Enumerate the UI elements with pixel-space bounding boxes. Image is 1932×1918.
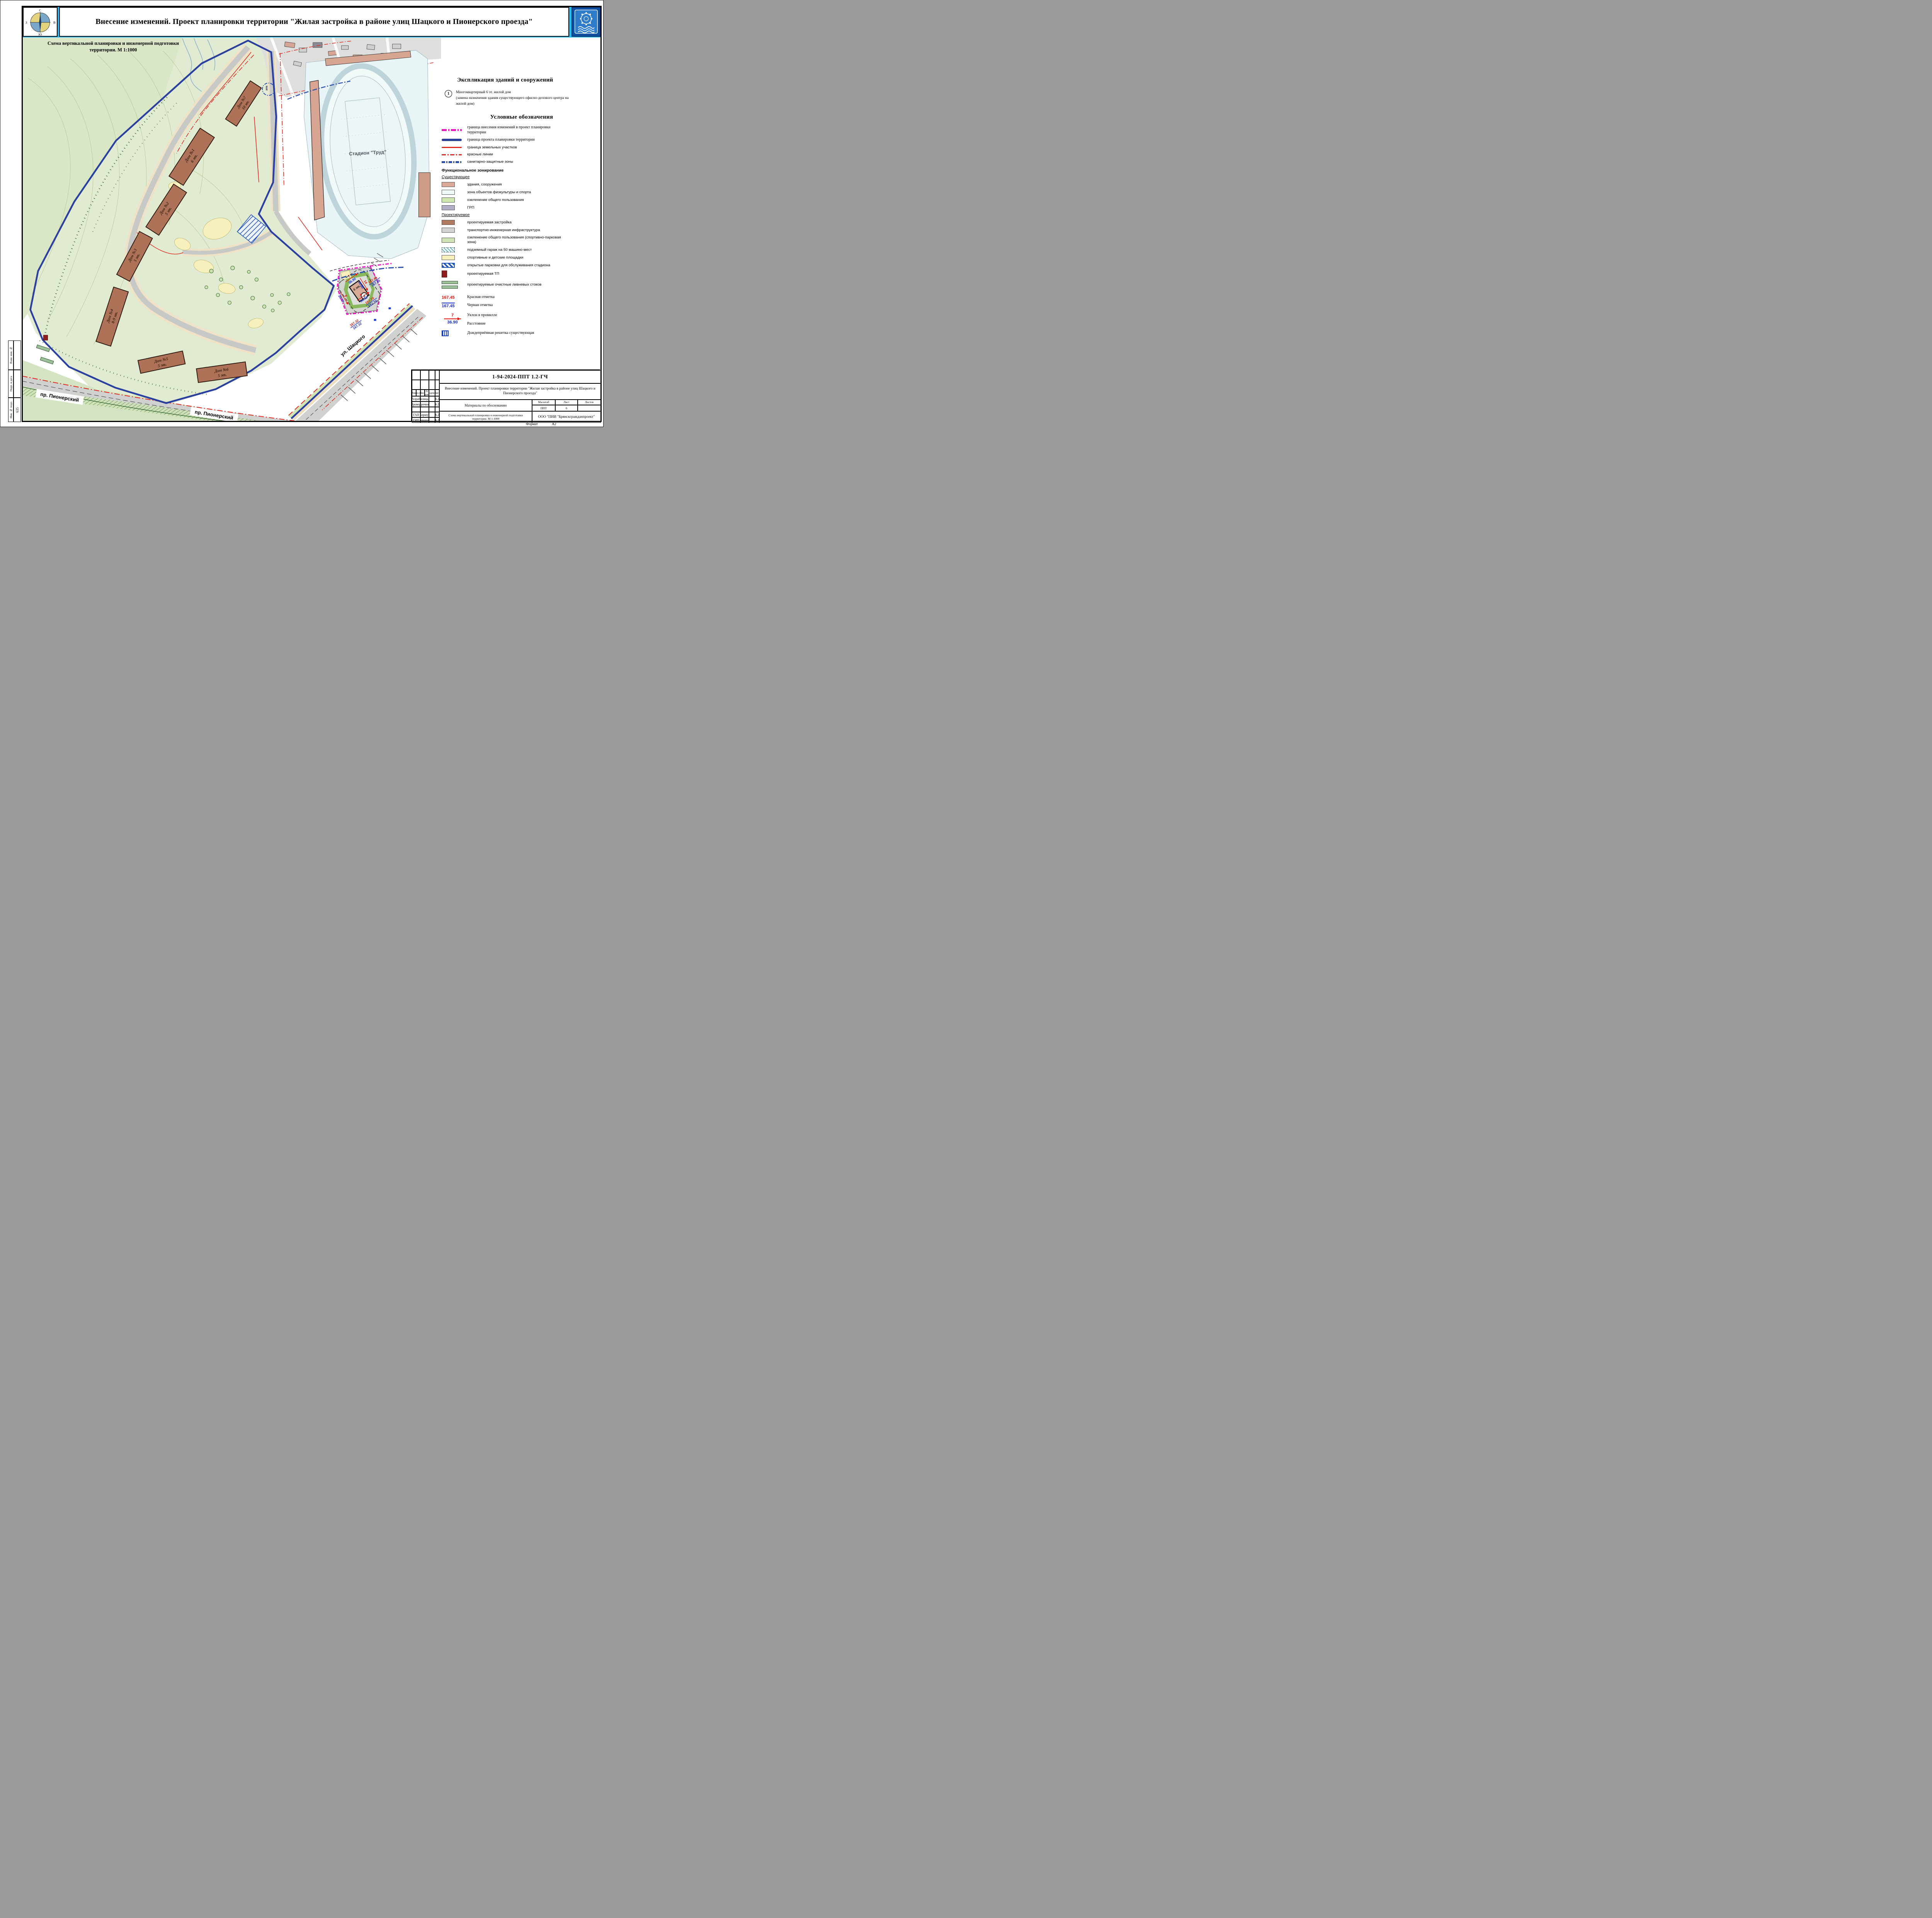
legend-label: Черная отметка — [467, 303, 493, 308]
title-bar: Внесение изменений. Проект планировки те… — [59, 7, 569, 37]
format-footer: Формат А2 — [526, 422, 603, 426]
proposed-tp — [43, 335, 48, 340]
legend-item: озеленение общего пользования (спортивно… — [442, 235, 602, 245]
legend-label: подземный гараж на 50 машино-мест — [467, 248, 532, 252]
change-boundary-symbol — [442, 129, 462, 131]
format-value: А2 — [552, 422, 556, 426]
explication-line: (замена назначения здания существующего … — [456, 95, 569, 101]
tb-sh-value: 6 — [555, 405, 578, 411]
tb-role: Разраб. — [412, 396, 420, 402]
legend-label: проектируемая ТП — [467, 272, 499, 276]
tb-col-ndok: N док. — [425, 390, 429, 396]
garage-swatch — [442, 247, 455, 252]
side-label: Взам. инв. № — [9, 347, 13, 364]
inventory-number: 635 — [15, 407, 19, 413]
tb-col-koluch: Кол.уч. — [416, 390, 420, 396]
legend-heading: Условные обозначения — [442, 114, 602, 121]
legend-label: Дождеприёмная решетка существующая — [467, 331, 534, 336]
tb-sh-label: Лист — [555, 400, 578, 405]
open-parking-swatch — [442, 263, 455, 268]
map-subtitle: Схема вертикальной планировки и инженерн… — [46, 40, 181, 53]
legend-label: ГРП — [467, 206, 474, 210]
tb-name: Коршук — [420, 412, 429, 417]
tb-sc-label: Масштаб — [532, 400, 555, 405]
greenery-swatch — [442, 197, 455, 203]
tb-name: Дорощин — [420, 417, 429, 423]
explication-panel: Экспликация зданий и сооружений 1 Многок… — [445, 77, 599, 107]
legend-item: проектируемая застройка — [442, 220, 602, 225]
explication-item-number: 1 — [445, 90, 452, 97]
legend-item: санитарно-защитные зоны — [442, 160, 602, 164]
tb-role: Провер. — [412, 402, 420, 407]
explication-item-text: Многоквартирный 6 эт. жилой дом (замена … — [456, 90, 569, 107]
legend-item: граница внесения изменений в проект план… — [442, 125, 602, 135]
legend-label: Красная отметка — [467, 295, 495, 300]
stadium-building-east — [419, 173, 430, 217]
tb-date: 06.24 — [435, 412, 439, 417]
explication-line: Многоквартирный 6 эт. жилой дом — [456, 90, 569, 95]
tb-company: ООО "ПИИ "Брянскгражданпроект" — [532, 411, 601, 423]
sport-zone-swatch — [442, 190, 455, 195]
legend-item: открытые парковки для обслуживания стади… — [442, 263, 602, 268]
compass-s: Ю — [39, 32, 42, 36]
side-label: Инв. № подл. — [9, 401, 13, 419]
side-stamp-vzam-value — [14, 340, 21, 370]
red-lines-symbol — [442, 154, 462, 155]
side-stamp-podp: Подп. и дата — [8, 370, 14, 398]
legend-label: граница земельных участков — [467, 145, 517, 150]
project-boundary-symbol — [442, 139, 462, 141]
explication-line: жилой дом) — [456, 101, 569, 107]
page-title: Внесение изменений. Проект планировки те… — [95, 17, 533, 26]
logo-icon — [572, 8, 600, 36]
legend-item: 167.45 Черная отметка — [442, 303, 602, 308]
compass-n: С — [39, 8, 41, 12]
legend-item: красные линии — [442, 152, 602, 157]
tb-col-data: Дата — [435, 390, 439, 396]
legend-label: спортивные и детские площадки — [467, 255, 523, 260]
side-label: Подп. и дата — [9, 376, 13, 391]
legend-item: здания, сооружения — [442, 182, 602, 187]
legend-item: граница проекта планировки территории — [442, 138, 602, 143]
grp-swatch — [442, 205, 455, 210]
red-mark-symbol: 167.45 — [442, 295, 455, 300]
park-greenery-swatch — [442, 238, 455, 243]
tb-scheme-name: Схема вертикальной планировки и инженерн… — [439, 411, 532, 423]
legend-item: спортивные и детские площадки — [442, 255, 602, 260]
compass-e: В — [53, 20, 56, 24]
zoning-heading: Функциональное зонирование — [442, 168, 602, 173]
legend-label: санитарно-защитные зоны — [467, 160, 513, 164]
proposed-heading: Проектируемое — [442, 213, 602, 217]
legend-item: 7 36.90 Уклон в промилле Расстояние — [442, 313, 602, 327]
parcel-boundary-symbol — [442, 147, 462, 148]
tb-name: Курочкина — [420, 402, 429, 407]
title-block: Изм. Кол.уч. Лист N док. Подпись Дата Ра… — [411, 369, 600, 422]
organization-logo — [571, 7, 601, 37]
storm-grate-symbol — [442, 330, 449, 336]
map-subtitle-line2: территории. М 1:1000 — [46, 47, 181, 53]
side-stamp-inv-value: 635 — [14, 398, 21, 422]
tb-shs-value — [578, 405, 601, 411]
legend-label: озеленение общего пользования — [467, 198, 524, 203]
playground-swatch — [442, 255, 455, 260]
legend-label: озеленение общего пользования (спортивно… — [467, 235, 564, 245]
legend-item: 167.45 Красная отметка — [442, 295, 602, 300]
legend-item: озеленение общего пользования — [442, 197, 602, 203]
tp-swatch — [442, 271, 447, 277]
storm-grate-icon — [389, 307, 391, 309]
explication-heading: Экспликация зданий и сооружений — [445, 77, 599, 83]
stadium-zone: Стадион "Труд" — [304, 50, 430, 259]
existing-heading: Существующее — [442, 175, 602, 179]
legend-label: красные линии — [467, 152, 493, 157]
storm-grate-icon — [374, 319, 376, 321]
tb-project-name: Внесение изменений. Проект планировки те… — [439, 383, 601, 400]
legend-label: граница проекта планировки территории — [467, 138, 535, 143]
legend-label: Уклон в промилле — [467, 313, 497, 318]
treatment-swatch — [442, 281, 458, 284]
tb-date: 06.24 — [435, 417, 439, 423]
legend-label: граница внесения изменений в проект план… — [467, 125, 564, 135]
drawing-sheet: С Ю З В Внесение изменений. Проект плани… — [0, 0, 604, 427]
tb-stage: Материалы по обоснованию — [439, 400, 532, 411]
tb-date: 06.24 — [435, 396, 439, 402]
tb-role: ГАП — [412, 412, 420, 417]
slope-symbol-value: 7 — [451, 313, 454, 318]
site-plan-map: Стадион "Труд" — [22, 37, 441, 422]
tb-date: 06.24 — [435, 402, 439, 407]
format-label: Формат — [526, 422, 538, 426]
tb-doc-number: 1-94-2024-ППТ 1.2-ГЧ — [439, 370, 601, 383]
tb-shs-label: Листов — [578, 400, 601, 405]
legend-item: граница земельных участков — [442, 145, 602, 150]
black-mark-symbol: 167.45 — [442, 303, 455, 308]
legend-item: Дождеприёмная решетка существующая — [442, 330, 602, 336]
legend-panel: Условные обозначения граница внесения из… — [442, 114, 602, 339]
explication-item: 1 Многоквартирный 6 эт. жилой дом (замен… — [445, 90, 599, 107]
tb-col-list: Лист — [420, 390, 425, 396]
legend-item: подземный гараж на 50 машино-мест — [442, 247, 602, 252]
legend-item: зона объектов физкультуры и спорта — [442, 190, 602, 195]
compass-icon: С Ю З В — [24, 8, 57, 36]
existing-buildings-swatch — [442, 182, 455, 187]
tb-sc-value: ППТ — [532, 405, 555, 411]
legend-item: проектируемые очистные ливневых стоков — [442, 280, 602, 289]
map-subtitle-line1: Схема вертикальной планировки и инженерн… — [46, 40, 181, 47]
tb-name: Столицына — [420, 396, 429, 402]
infrastructure-swatch — [442, 228, 455, 233]
legend-item: ГРП — [442, 205, 602, 210]
legend-label: зона объектов физкультуры и спорта — [467, 190, 531, 195]
legend-label: открытые парковки для обслуживания стади… — [467, 263, 550, 268]
legend-label: Расстояние — [467, 322, 497, 327]
slope-arrow-icon — [444, 318, 461, 319]
legend-label: транспортно-инженерная инфраструктура — [467, 228, 540, 233]
distance-symbol-value: 36.90 — [447, 320, 458, 325]
sanitary-zone-symbol — [442, 161, 462, 163]
legend-label: здания, сооружения — [467, 182, 502, 187]
proposed-buildings-swatch — [442, 220, 455, 225]
side-stamp-inv: Инв. № подл. — [8, 398, 14, 422]
legend-label: проектируемая застройка — [467, 220, 512, 225]
legend-item: проектируемая ТП — [442, 271, 602, 277]
side-stamp-podp-value — [14, 370, 21, 398]
legend-item: транспортно-инженерная инфраструктура — [442, 228, 602, 233]
legend-label: проектируемые очистные ливневых стоков — [467, 283, 541, 287]
compass: С Ю З В — [23, 7, 58, 37]
compass-w: З — [26, 20, 27, 24]
treatment-swatch — [442, 286, 458, 289]
tb-col-podpis: Подпись — [429, 390, 435, 396]
tb-role: ГИП — [412, 417, 420, 423]
side-stamp-vzam: Взам. инв. № — [8, 340, 14, 370]
tb-col-izm: Изм. — [412, 390, 416, 396]
